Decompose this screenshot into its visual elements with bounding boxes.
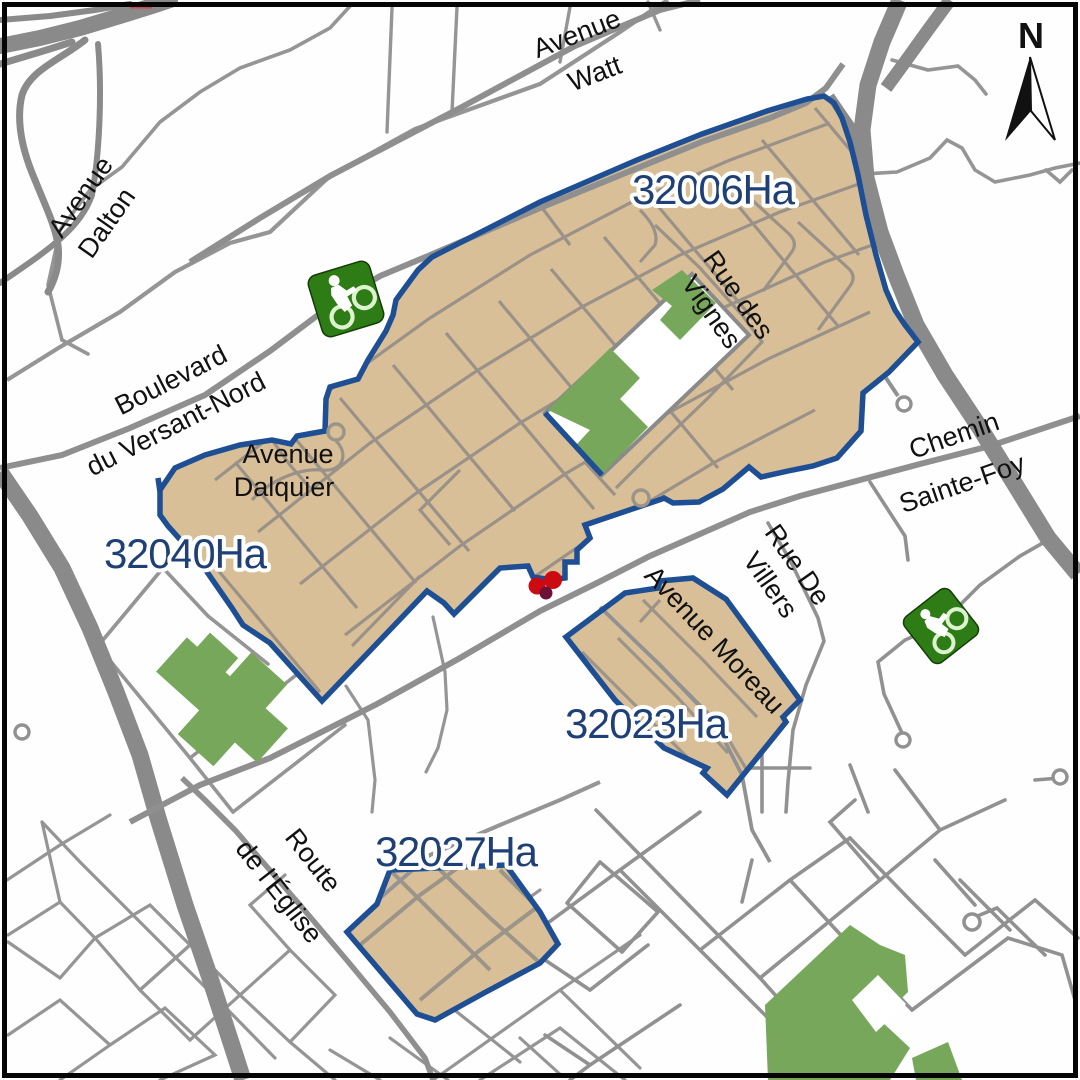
svg-text:Dalquier: Dalquier: [234, 472, 335, 502]
svg-text:N: N: [1018, 15, 1044, 56]
svg-text:32006Ha: 32006Ha: [632, 166, 796, 213]
svg-text:32027Ha: 32027Ha: [375, 828, 539, 875]
svg-text:32040Ha: 32040Ha: [104, 530, 268, 577]
svg-text:Avenue: Avenue: [242, 439, 333, 469]
svg-text:32023Ha: 32023Ha: [565, 700, 729, 747]
